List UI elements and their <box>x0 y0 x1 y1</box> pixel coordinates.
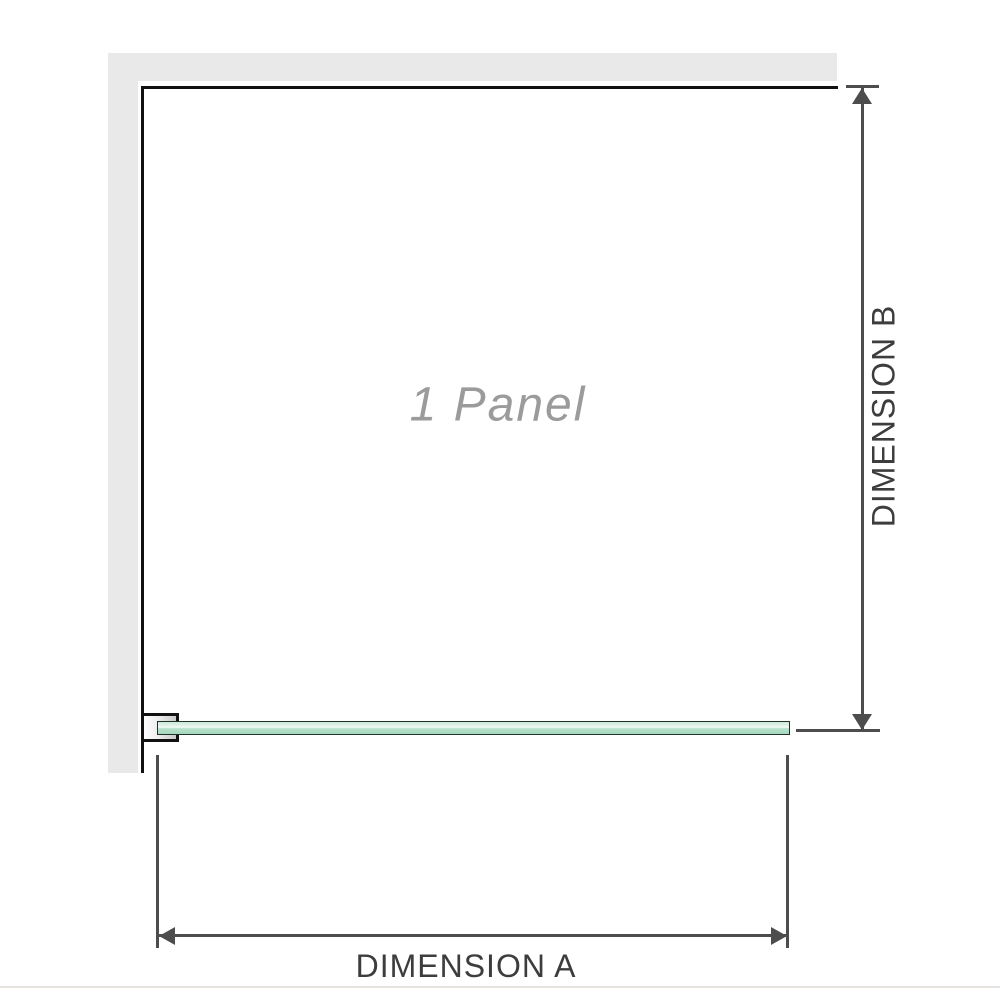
dimension-a-arrowhead-right <box>771 927 787 945</box>
wall-segment-left <box>108 53 138 773</box>
panel-count-label: 1 Panel <box>410 378 587 433</box>
dimension-b-arrowhead-top <box>852 88 872 104</box>
dimension-b-label: DIMENSION B <box>866 305 903 528</box>
dimension-b-line <box>861 87 864 731</box>
dimension-a-extension-left <box>156 755 159 948</box>
dimension-b-arrowhead-bottom <box>852 714 872 730</box>
diagram-canvas: 1 Panel DIMENSION B DIMENSION A <box>0 0 1000 1000</box>
dimension-a-label: DIMENSION A <box>356 948 577 985</box>
dimension-a-line <box>158 934 788 937</box>
dimension-a-extension-right <box>786 755 789 948</box>
wall-segment-top <box>108 53 837 81</box>
dimension-a-arrowhead-left <box>159 927 175 945</box>
page-edge-line <box>0 986 1000 988</box>
glass-panel <box>157 721 790 735</box>
